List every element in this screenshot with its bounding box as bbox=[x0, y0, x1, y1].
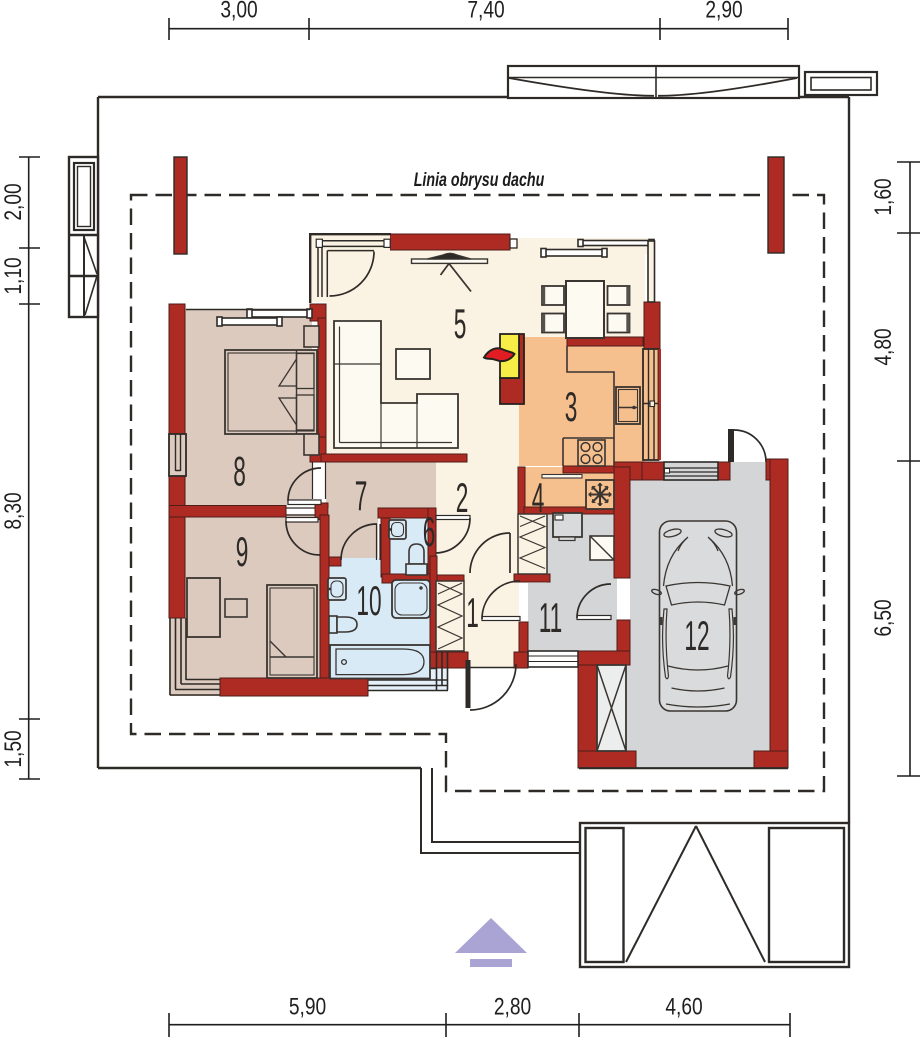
svg-text:2,90: 2,90 bbox=[705, 0, 742, 23]
svg-text:5,90: 5,90 bbox=[289, 992, 326, 1020]
svg-text:12: 12 bbox=[684, 613, 709, 660]
svg-text:3: 3 bbox=[565, 384, 578, 431]
svg-text:10: 10 bbox=[356, 578, 381, 625]
svg-text:1,60: 1,60 bbox=[869, 178, 897, 215]
svg-text:9: 9 bbox=[236, 529, 249, 576]
svg-text:6: 6 bbox=[423, 509, 436, 556]
svg-text:6,50: 6,50 bbox=[869, 599, 897, 636]
svg-text:3,00: 3,00 bbox=[220, 0, 257, 23]
svg-text:1: 1 bbox=[466, 590, 479, 637]
svg-text:2,00: 2,00 bbox=[0, 183, 27, 220]
svg-text:1,10: 1,10 bbox=[0, 257, 27, 294]
svg-text:4: 4 bbox=[532, 475, 545, 522]
svg-text:5: 5 bbox=[454, 301, 467, 348]
svg-text:7: 7 bbox=[355, 473, 368, 520]
svg-text:11: 11 bbox=[539, 595, 563, 642]
svg-text:Linia obrysu dachu: Linia obrysu dachu bbox=[414, 169, 545, 190]
svg-text:2: 2 bbox=[456, 475, 469, 522]
svg-text:1,50: 1,50 bbox=[0, 730, 27, 767]
svg-text:8: 8 bbox=[233, 448, 246, 495]
svg-text:4,60: 4,60 bbox=[665, 992, 702, 1020]
svg-text:8,30: 8,30 bbox=[0, 492, 27, 529]
svg-text:2,80: 2,80 bbox=[494, 992, 531, 1020]
svg-text:7,40: 7,40 bbox=[467, 0, 504, 23]
svg-text:4,80: 4,80 bbox=[869, 328, 897, 365]
